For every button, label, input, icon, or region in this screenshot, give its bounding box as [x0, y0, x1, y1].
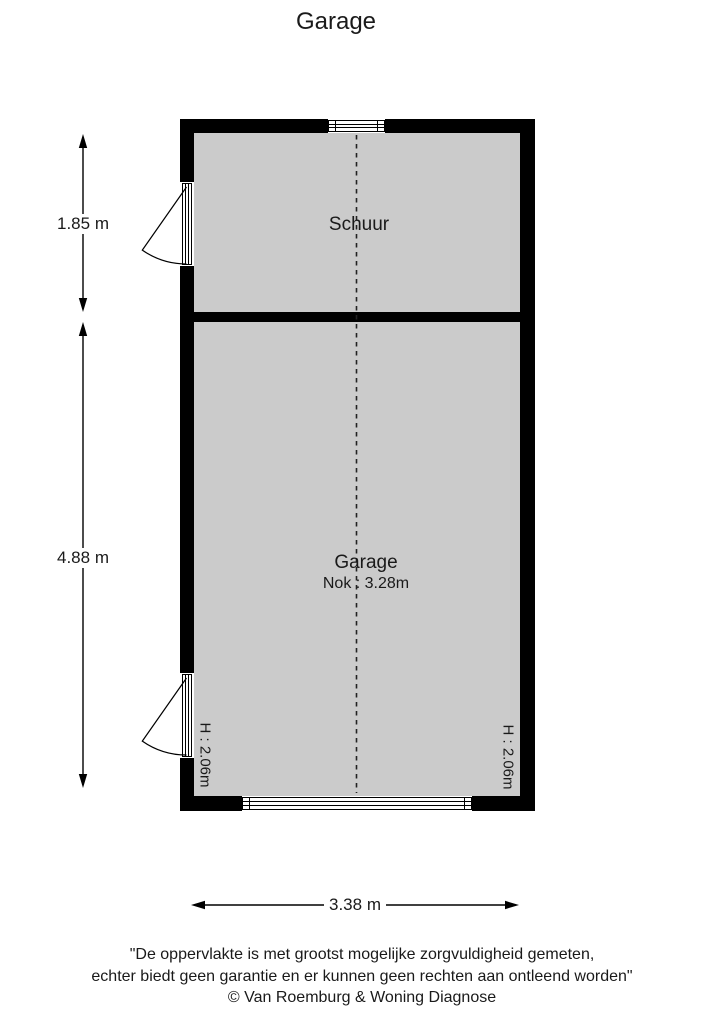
arrowhead-icon: [79, 774, 87, 788]
arrowhead-icon: [191, 901, 205, 909]
door-frame-schuur: [182, 183, 192, 265]
wall-left-upper: [180, 119, 194, 182]
footer-line-1: "De oppervlakte is met grootst mogelijke…: [0, 944, 724, 966]
wall-top-left: [180, 119, 328, 133]
garage-door-lines: [243, 801, 471, 806]
wall-bottom-right: [472, 796, 535, 811]
wall-top-right: [385, 119, 535, 133]
garage-door-cap-right: [464, 798, 465, 809]
window-cap-left: [335, 121, 336, 131]
dimension-label-total-width: 3.38 m: [324, 895, 386, 915]
dimension-label-garage-depth: 4.88 m: [52, 548, 114, 568]
arrowhead-icon: [79, 322, 87, 336]
dimension-label-schuur-depth: 1.85 m: [52, 214, 114, 234]
garage-door-cap-left: [249, 798, 250, 809]
door-frame-garage: [182, 674, 192, 757]
door-leaf-lines: [185, 675, 189, 756]
page-title: Garage: [296, 8, 376, 36]
window-icon: [328, 120, 385, 132]
wall-divider: [180, 312, 535, 322]
wall-bottom-left: [180, 796, 242, 811]
wall-right: [520, 119, 535, 811]
schuur-room-label: Schuur: [329, 214, 389, 236]
footer-disclaimer: "De oppervlakte is met grootst mogelijke…: [0, 944, 724, 1009]
footer-line-2: echter biedt geen garantie en er kunnen …: [0, 966, 724, 988]
arrowhead-icon: [79, 298, 87, 312]
arrowhead-icon: [505, 901, 519, 909]
window-glass-lines: [329, 124, 384, 128]
wall-left-middle: [180, 266, 194, 673]
ridge-height-label: Nok : 3.28m: [323, 575, 409, 593]
garage-room-label: Garage: [334, 552, 397, 574]
footer-line-3: © Van Roemburg & Woning Diagnose: [0, 987, 724, 1009]
door-leaf-lines: [185, 184, 189, 264]
window-cap-right: [377, 121, 378, 131]
garage-door-icon: [242, 797, 472, 810]
arrowhead-icon: [79, 134, 87, 148]
door-height-label-left: H : 2.06m: [197, 722, 214, 787]
door-height-label-right: H : 2.06m: [500, 724, 517, 789]
